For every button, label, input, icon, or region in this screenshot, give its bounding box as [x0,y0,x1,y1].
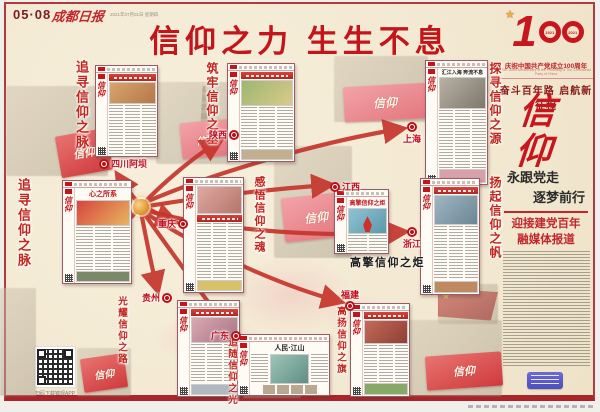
qr-code [34,346,76,388]
newspaper-masthead: 成都日报 [51,6,105,25]
imprint-line [468,405,594,408]
column-subtitle: 永跟党走 逐梦前行 [501,168,591,208]
faith-calligraphy: 信仰 [510,92,554,178]
party-emblem-icon: ★ [505,8,515,21]
page-main-title: 信仰之力 生生不息 [105,16,495,61]
editorial-body-text [503,251,590,368]
flag-star-icon: ★ [442,291,450,302]
qr-pattern [37,349,73,385]
qr-caption: 扫码下载锦观APP [22,390,88,397]
page-number: 05·08 [13,7,51,22]
logo-ring-1921: 1921 [539,21,561,43]
series-label: 迎接建党百年 融媒体报道 [501,217,591,248]
logo-digit-1: 1 [512,10,536,54]
series-line-1: 迎接建党百年 [501,217,591,233]
subtitle-line-1: 永跟党走 [501,168,591,188]
series-line-2: 融媒体报道 [501,233,591,249]
party-flag: ★ [438,288,498,322]
app-promo-badge [527,372,563,389]
subtitle-line-2: 逐梦前行 [501,188,591,208]
logo-ring-2021: 2021 [562,21,584,43]
anniversary-text-en: The 100th Anniversary of the Founding of… [501,68,591,77]
red-divider [504,211,588,213]
centenary-100-logo: 1 1921 2021 [505,5,591,59]
